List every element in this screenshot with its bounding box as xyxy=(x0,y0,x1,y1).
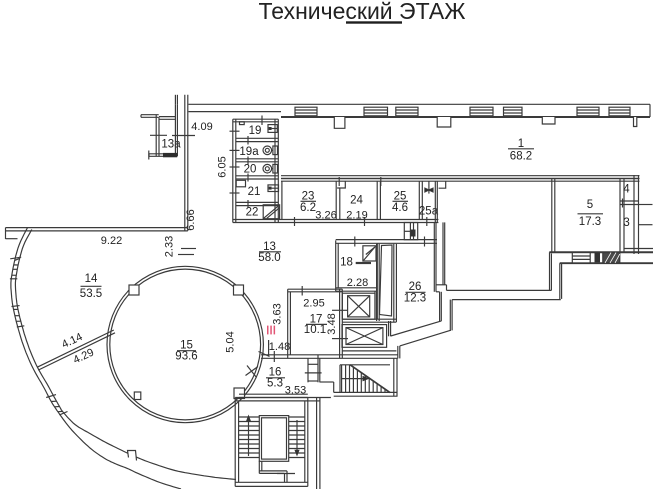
svg-text:24: 24 xyxy=(350,195,363,207)
svg-text:4: 4 xyxy=(623,184,630,196)
svg-text:17.3: 17.3 xyxy=(579,216,601,228)
svg-text:14: 14 xyxy=(85,273,98,285)
svg-text:13а: 13а xyxy=(161,139,181,151)
svg-text:12.3: 12.3 xyxy=(404,293,426,305)
svg-text:25: 25 xyxy=(394,191,407,203)
svg-text:3: 3 xyxy=(623,217,629,229)
svg-text:23: 23 xyxy=(302,191,315,203)
svg-text:26: 26 xyxy=(409,281,422,293)
svg-text:1.48: 1.48 xyxy=(269,341,290,353)
svg-text:93.6: 93.6 xyxy=(175,351,197,363)
svg-text:53.5: 53.5 xyxy=(80,288,102,300)
svg-text:10.1: 10.1 xyxy=(304,324,326,336)
svg-text:5.04: 5.04 xyxy=(225,331,237,352)
svg-text:3.63: 3.63 xyxy=(272,303,284,324)
svg-text:6.2: 6.2 xyxy=(300,202,316,214)
svg-text:22: 22 xyxy=(246,207,259,219)
svg-text:9.22: 9.22 xyxy=(101,235,122,247)
svg-text:4.09: 4.09 xyxy=(191,121,212,133)
svg-text:3.48: 3.48 xyxy=(326,313,338,334)
svg-text:19: 19 xyxy=(249,125,262,137)
svg-text:3.26: 3.26 xyxy=(315,210,336,222)
svg-text:Технический ЭТАЖ: Технический ЭТАЖ xyxy=(259,0,466,24)
svg-text:4.29: 4.29 xyxy=(71,346,95,366)
svg-text:5: 5 xyxy=(587,199,593,211)
svg-text:5.3: 5.3 xyxy=(267,378,283,390)
svg-text:2.95: 2.95 xyxy=(303,298,324,310)
svg-text:21: 21 xyxy=(248,186,261,198)
svg-text:18: 18 xyxy=(340,257,353,269)
svg-text:1: 1 xyxy=(518,138,524,150)
svg-text:2.33: 2.33 xyxy=(164,236,176,257)
svg-text:4.14: 4.14 xyxy=(60,331,84,351)
svg-text:20: 20 xyxy=(244,164,257,176)
svg-text:4.6: 4.6 xyxy=(392,202,408,214)
svg-text:6.05: 6.05 xyxy=(217,156,229,177)
svg-text:58.0: 58.0 xyxy=(258,252,280,264)
svg-text:68.2: 68.2 xyxy=(510,151,532,163)
svg-text:19а: 19а xyxy=(239,146,259,158)
svg-text:2.28: 2.28 xyxy=(347,277,368,289)
